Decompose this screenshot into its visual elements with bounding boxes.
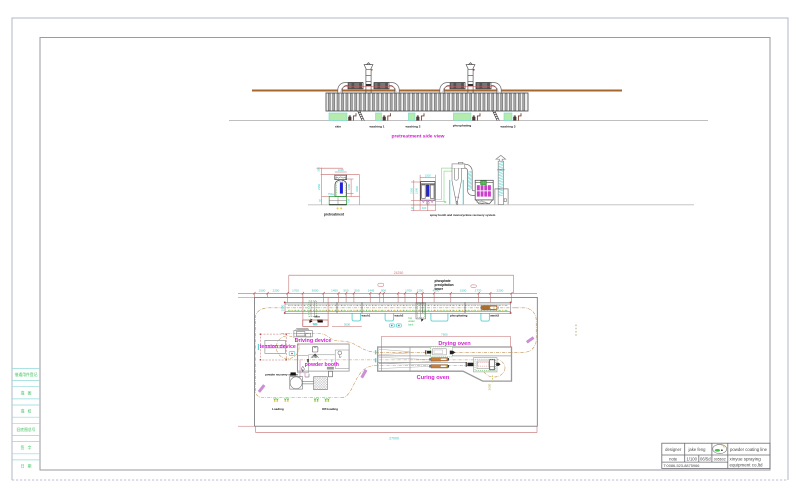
- svg-text:27000: 27000: [389, 437, 399, 441]
- svg-text:washing 1: washing 1: [369, 125, 385, 129]
- svg-text:skin: skin: [314, 315, 320, 319]
- svg-text:tension device: tension device: [260, 344, 296, 350]
- svg-text:750a: 750a: [328, 192, 334, 196]
- svg-text:1700: 1700: [405, 288, 412, 292]
- svg-text:Driving device: Driving device: [295, 338, 332, 344]
- svg-text:500: 500: [313, 323, 318, 327]
- svg-text:designer: designer: [665, 447, 682, 452]
- svg-text:7500: 7500: [441, 332, 448, 336]
- svg-text:2350: 2350: [410, 188, 414, 194]
- svg-text:Off-loading: Off-loading: [322, 407, 338, 411]
- svg-text:pretreatment: pretreatment: [324, 213, 345, 217]
- svg-text:wash3: wash3: [489, 313, 499, 317]
- svg-text:1/100: 1/100: [686, 456, 697, 461]
- svg-text:1500: 1500: [460, 288, 467, 292]
- svg-text:1500: 1500: [415, 188, 419, 194]
- svg-text:tank: tank: [408, 323, 414, 327]
- svg-text:pretreatment side view: pretreatment side view: [391, 133, 444, 139]
- svg-text:T:0086-523-8875966: T:0086-523-8875966: [664, 463, 700, 468]
- svg-text:2250: 2250: [273, 288, 280, 292]
- svg-text:powder booth: powder booth: [305, 362, 339, 368]
- svg-text:1500: 1500: [281, 304, 285, 311]
- svg-text:1500: 1500: [259, 288, 266, 292]
- svg-text:note: note: [669, 456, 678, 461]
- svg-text:equipment co,ltd: equipment co,ltd: [730, 463, 764, 468]
- svg-text:2350: 2350: [317, 184, 321, 190]
- svg-text:jake feng: jake feng: [688, 447, 707, 452]
- svg-text:3000: 3000: [312, 288, 319, 292]
- svg-text:Loading: Loading: [272, 407, 284, 411]
- svg-text:1770: 1770: [475, 288, 482, 292]
- svg-text:1500: 1500: [425, 173, 431, 177]
- svg-text:60: 60: [411, 206, 414, 210]
- svg-text:500: 500: [381, 288, 386, 292]
- svg-text:1500: 1500: [347, 184, 351, 190]
- svg-text:Drying oven: Drying oven: [438, 341, 471, 347]
- svg-text:3300: 3300: [355, 186, 359, 192]
- svg-text:phosphating: phosphating: [450, 313, 468, 317]
- svg-text:1008: 1008: [338, 168, 344, 172]
- svg-text:750: 750: [347, 198, 351, 203]
- svg-text:wash2: wash2: [394, 314, 404, 318]
- svg-text:300: 300: [316, 167, 320, 172]
- svg-text:24250: 24250: [394, 271, 404, 275]
- svg-text:Curing oven: Curing oven: [417, 375, 450, 381]
- svg-text:005602: 005602: [714, 457, 726, 461]
- svg-text:1250: 1250: [417, 288, 424, 292]
- svg-text:water: water: [408, 319, 415, 323]
- svg-text:500: 500: [354, 288, 359, 292]
- svg-text:06/5d: 06/5d: [700, 456, 711, 461]
- svg-text:描 图: 描 图: [21, 390, 32, 395]
- svg-text:描 校: 描 校: [21, 409, 32, 414]
- svg-text:50: 50: [319, 199, 322, 203]
- svg-text:washing 2: washing 2: [405, 125, 421, 129]
- svg-text:hot: hot: [408, 316, 412, 320]
- svg-text:powder recovery system: powder recovery system: [265, 372, 298, 376]
- svg-text:1450: 1450: [331, 288, 338, 292]
- svg-text:wash1: wash1: [361, 314, 371, 318]
- svg-text:powder coating line: powder coating line: [730, 447, 768, 452]
- svg-text:日 期: 日 期: [21, 464, 32, 469]
- svg-text:旧底图总号: 旧底图总号: [17, 427, 36, 432]
- svg-text:xinyue spraying: xinyue spraying: [730, 457, 762, 462]
- svg-text:washing 3: washing 3: [500, 125, 516, 129]
- svg-text:tower: tower: [435, 287, 444, 291]
- svg-text:500: 500: [343, 288, 348, 292]
- svg-text:1445: 1445: [368, 288, 375, 292]
- svg-text:3000: 3000: [344, 323, 351, 327]
- svg-text:400: 400: [422, 206, 427, 210]
- svg-text:1700: 1700: [292, 288, 299, 292]
- svg-text:skin: skin: [335, 125, 341, 129]
- svg-text:签 字: 签 字: [21, 445, 32, 450]
- svg-text:spray booth and monocyclone re: spray booth and monocyclone recovery sys…: [430, 213, 496, 217]
- svg-text:2200: 2200: [497, 288, 504, 292]
- svg-text:2000: 2000: [488, 383, 492, 390]
- svg-text:phosphating: phosphating: [453, 124, 472, 128]
- svg-text:借通用件登记: 借通用件登记: [15, 372, 38, 377]
